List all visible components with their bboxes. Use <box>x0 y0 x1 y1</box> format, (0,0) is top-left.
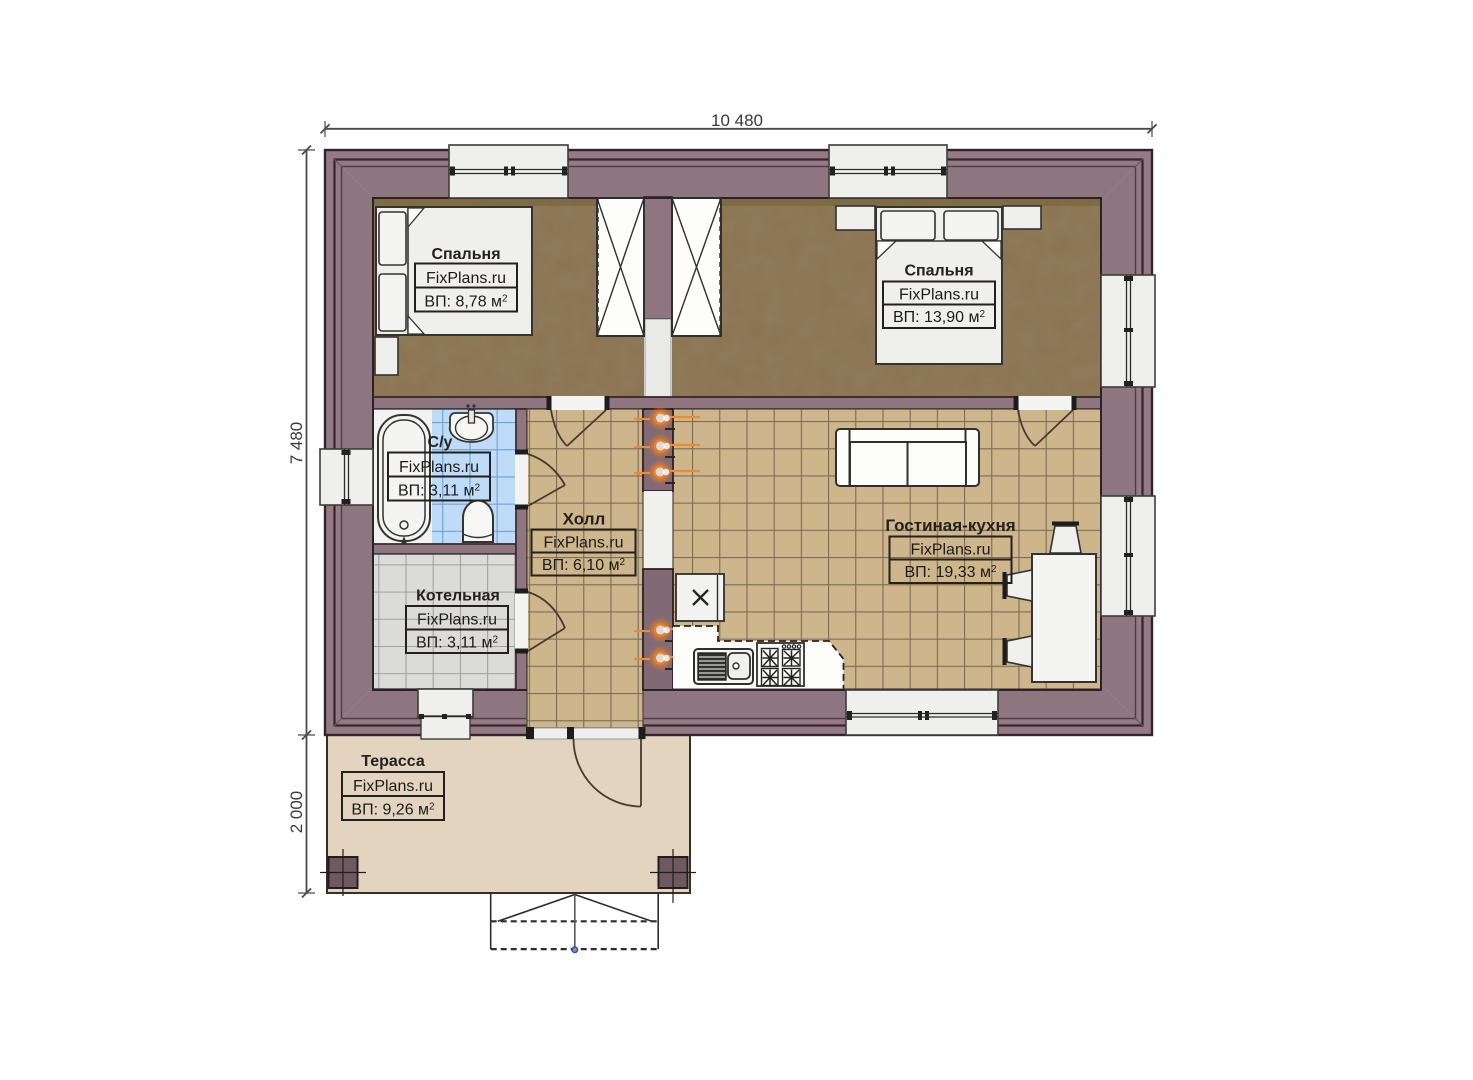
svg-text:FixPlans.ru: FixPlans.ru <box>426 270 506 287</box>
svg-text:FixPlans.ru: FixPlans.ru <box>353 778 433 795</box>
svg-text:Терасса: Терасса <box>361 753 425 770</box>
svg-text:С/у: С/у <box>428 434 453 451</box>
svg-text:FixPlans.ru: FixPlans.ru <box>417 612 497 629</box>
svg-text:2 000: 2 000 <box>287 791 306 834</box>
svg-text:ВП: 3,11 м2: ВП: 3,11 м2 <box>398 483 480 500</box>
svg-text:ВП: 13,90 м2: ВП: 13,90 м2 <box>893 309 986 326</box>
svg-text:ВП: 3,11 м2: ВП: 3,11 м2 <box>416 635 498 652</box>
svg-text:FixPlans.ru: FixPlans.ru <box>399 459 479 476</box>
svg-text:7 480: 7 480 <box>287 422 306 465</box>
svg-text:Котельная: Котельная <box>416 588 500 605</box>
svg-text:ВП: 19,33 м2: ВП: 19,33 м2 <box>904 564 997 581</box>
svg-text:Спальня: Спальня <box>904 263 973 280</box>
svg-text:Холл: Холл <box>563 510 606 529</box>
svg-text:ВП: 6,10 м2: ВП: 6,10 м2 <box>542 557 626 574</box>
svg-text:FixPlans.ru: FixPlans.ru <box>899 287 979 304</box>
svg-text:ВП: 8,78 м2: ВП: 8,78 м2 <box>424 294 508 311</box>
svg-text:FixPlans.ru: FixPlans.ru <box>910 542 990 559</box>
svg-text:Спальня: Спальня <box>431 246 500 263</box>
svg-text:10 480: 10 480 <box>711 111 763 130</box>
svg-text:ВП: 9,26 м2: ВП: 9,26 м2 <box>351 802 435 819</box>
svg-text:FixPlans.ru: FixPlans.ru <box>543 535 623 552</box>
svg-text:Гостиная-кухня: Гостиная-кухня <box>885 516 1015 535</box>
